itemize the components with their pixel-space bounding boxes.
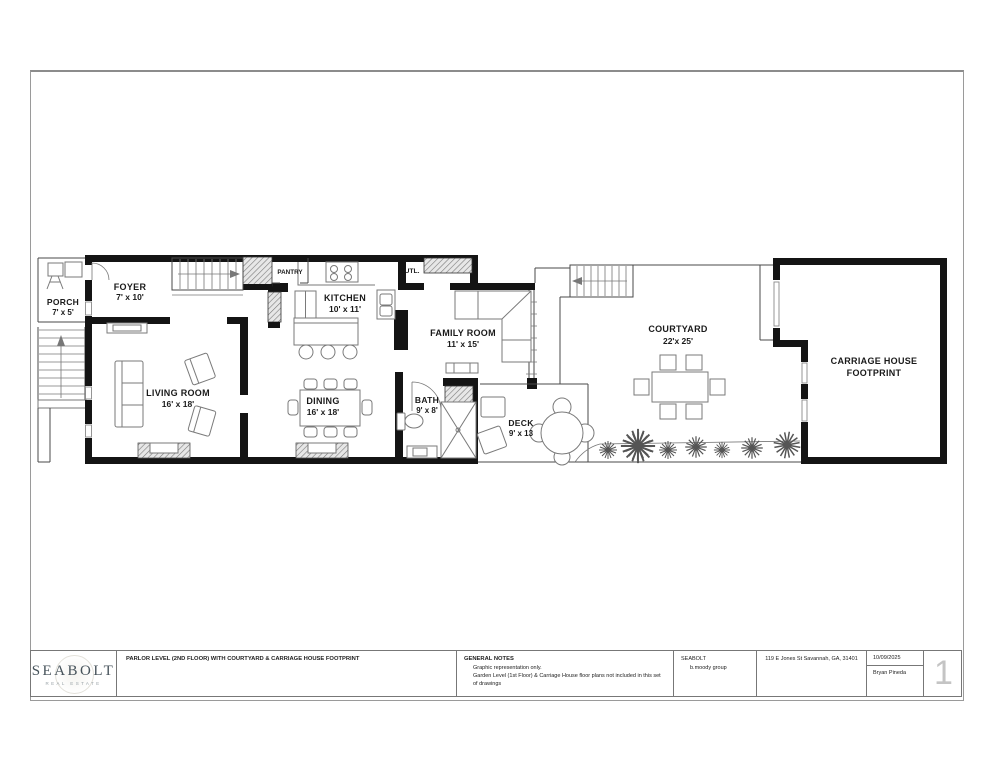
- porch-structure: [38, 258, 86, 462]
- room-label-family: FAMILY ROOM: [430, 328, 496, 338]
- room-label-bath: BATH: [415, 395, 439, 405]
- drawing-date: 10/09/2025: [867, 651, 923, 666]
- drawing-title: PARLOR LEVEL (2ND FLOOR) WITH COURTYARD …: [116, 651, 456, 696]
- general-notes-line: Graphic representation only.: [464, 664, 666, 672]
- room-dims-dining: 16' x 18': [307, 407, 339, 417]
- deck-chair-icon: [477, 426, 507, 455]
- room-dims-deck: 9' x 13: [509, 429, 534, 438]
- shower-icon: [441, 402, 476, 458]
- property-address: 119 E Jones St Savannah, GA, 31401: [756, 651, 866, 696]
- room-dims-kitchen: 10' x 11': [329, 304, 361, 314]
- room-label-carriage-line2: FOOTPRINT: [847, 368, 902, 378]
- fireplace-icon: [138, 443, 190, 458]
- dining-furniture: [288, 379, 372, 458]
- deck-chair-icon: [481, 397, 505, 417]
- sheet-number-cell: 1: [923, 651, 963, 696]
- armchair-icon: [188, 405, 216, 436]
- room-label-dining: DINING: [306, 396, 339, 406]
- armchair-icon: [184, 353, 215, 386]
- logo-tagline: REAL ESTATE: [31, 681, 116, 686]
- sectional-sofa-icon: [455, 291, 531, 362]
- logo-name: SEABOLT: [31, 663, 116, 680]
- toilet-icon: [397, 413, 423, 430]
- general-notes-line: Garden Level (1st Floor) & Carriage Hous…: [464, 672, 666, 689]
- porch-staircase-icon: [38, 327, 86, 462]
- floor-plan-page: PORCH 7' x 5' FOYER 7' x 10' PANTRY KITC…: [0, 0, 994, 768]
- courtyard-staircase-icon: [570, 265, 633, 297]
- sheet-number: 1: [924, 651, 963, 695]
- logo: SEABOLT REAL ESTATE: [31, 651, 116, 696]
- porch-grill-icon: [47, 262, 82, 289]
- courtyard-dining-set-icon: [634, 355, 725, 419]
- room-label-utility: UTL.: [404, 268, 419, 275]
- room-label-kitchen: KITCHEN: [324, 293, 366, 303]
- room-label-pantry: PANTRY: [277, 269, 303, 276]
- firm-info: SEABOLT b.moody group: [673, 651, 756, 696]
- kitchen-sink-icon: [377, 290, 395, 319]
- drawing-meta: 10/09/2025 Bryan Pineda: [866, 651, 923, 696]
- vanity-sink-icon: [407, 446, 437, 458]
- kitchen-island-icon: [294, 318, 358, 359]
- front-door-swing: [92, 263, 109, 280]
- fridge-icon: [295, 291, 316, 318]
- deck-table-icon: [541, 412, 583, 454]
- firm-group: b.moody group: [681, 664, 749, 673]
- firm-name: SEABOLT: [681, 655, 749, 664]
- stove-icon: [326, 262, 358, 282]
- room-label-courtyard: COURTYARD: [648, 324, 708, 334]
- prepared-by: Bryan Pineda: [867, 666, 923, 676]
- sofa-icon: [115, 361, 143, 427]
- bench-icon: [446, 363, 478, 373]
- foyer-staircase-icon: [172, 258, 243, 295]
- room-label-carriage: CARRIAGE HOUSE: [831, 356, 918, 366]
- room-label-living: LIVING ROOM: [146, 388, 210, 398]
- room-label-porch: PORCH: [47, 297, 79, 307]
- room-dims-courtyard: 22'x 25': [663, 336, 693, 346]
- room-dims-bath: 9' x 8': [416, 406, 438, 415]
- general-notes: GENERAL NOTES Graphic representation onl…: [456, 651, 673, 696]
- room-dims-living: 16' x 18': [162, 399, 194, 409]
- title-block: SEABOLT REAL ESTATE PARLOR LEVEL (2ND FL…: [30, 650, 962, 697]
- room-dims-family: 11' x 15': [447, 339, 479, 349]
- general-notes-heading: GENERAL NOTES: [464, 655, 666, 664]
- room-label-deck: DECK: [508, 418, 534, 428]
- room-dims-porch: 7' x 5': [52, 308, 74, 317]
- fireplace-icon: [296, 443, 348, 458]
- garden-plants-icon: [599, 427, 803, 464]
- room-dims-foyer: 7' x 10': [116, 292, 144, 302]
- room-label-foyer: FOYER: [114, 282, 147, 292]
